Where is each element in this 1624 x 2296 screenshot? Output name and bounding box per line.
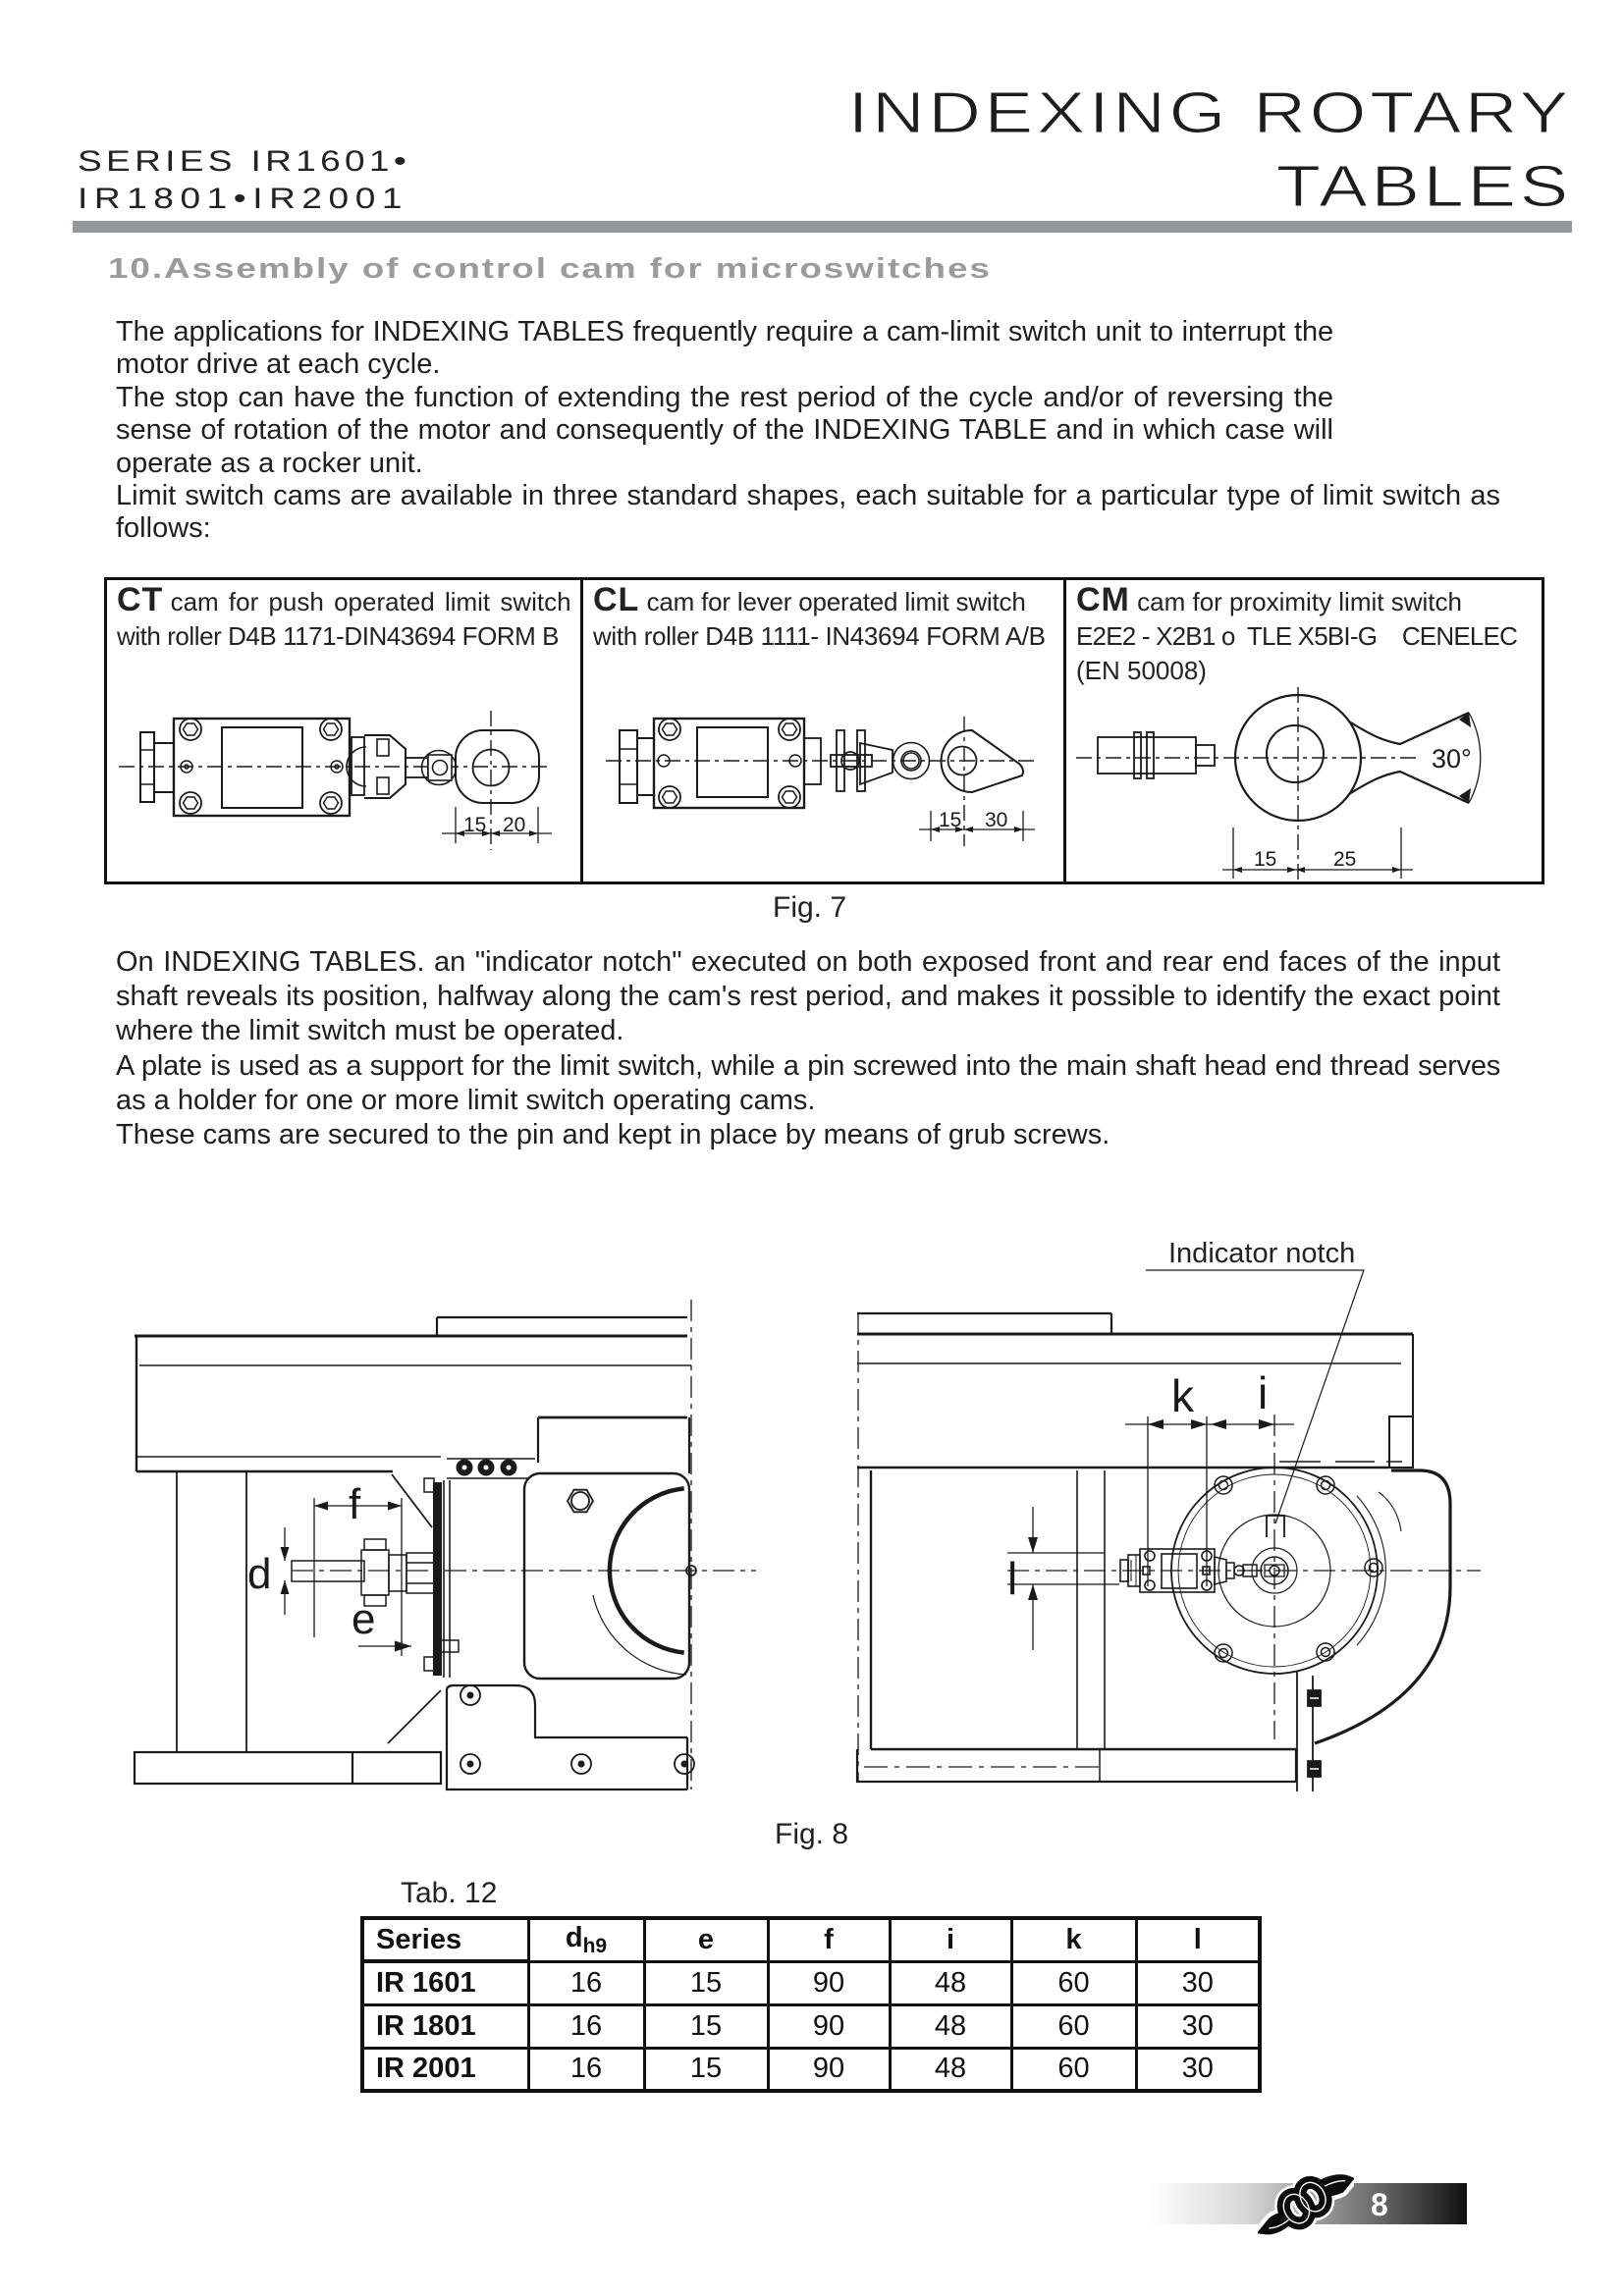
svg-text:Indicator notch: Indicator notch — [1168, 1238, 1355, 1269]
svg-text:k: k — [1171, 1370, 1195, 1421]
svg-text:25: 25 — [1333, 848, 1356, 871]
svg-text:15: 15 — [939, 809, 961, 831]
svg-text:20: 20 — [503, 814, 525, 836]
svg-text:15: 15 — [463, 814, 486, 836]
svg-text:30°: 30° — [1432, 744, 1472, 774]
svg-text:15: 15 — [1254, 848, 1276, 871]
svg-text:f: f — [349, 1480, 361, 1528]
svg-text:l: l — [1007, 1553, 1017, 1604]
svg-text:30: 30 — [985, 809, 1007, 831]
svg-text:e: e — [352, 1595, 375, 1643]
svg-text:d: d — [247, 1550, 271, 1598]
svg-text:i: i — [1258, 1367, 1268, 1418]
